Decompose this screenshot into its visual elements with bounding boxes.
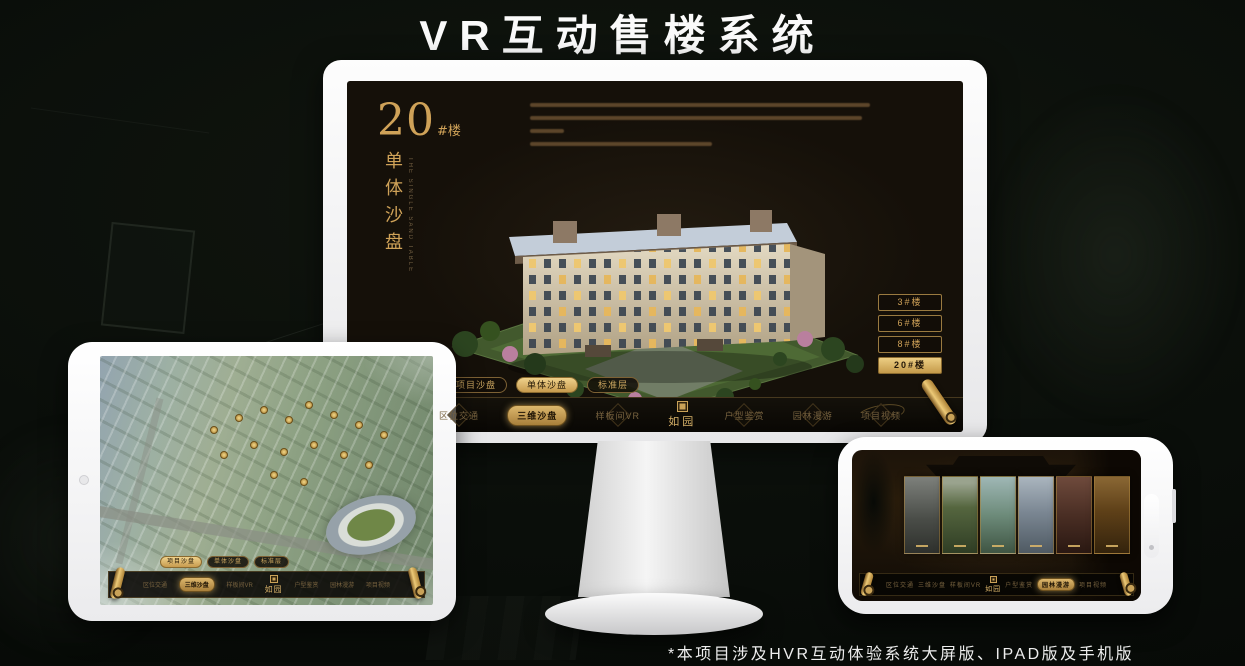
tab-single-sandtable[interactable]: 单体沙盘	[207, 556, 249, 568]
nav-item-garden-roam[interactable]: 园林漫游	[793, 409, 833, 422]
nav-item-garden-roam[interactable]: 园林漫游	[1037, 578, 1075, 591]
ruyuan-logo-text: 如园	[265, 584, 283, 595]
nav-item-location-traffic[interactable]: 区位交通	[439, 409, 479, 422]
background-texture-blob	[990, 90, 1240, 420]
intro-text-line	[530, 103, 870, 107]
tablet-camera-icon	[79, 475, 89, 485]
phone-screen-vr-scene[interactable]: 区位交通 三维沙盘 样板间VR 如园 户型鉴赏 园林漫游 项目视频	[852, 450, 1141, 601]
ruyuan-seal-icon	[270, 575, 278, 583]
gallery-panel[interactable]	[942, 476, 978, 554]
vertical-title: 单体沙盘	[379, 151, 405, 259]
nav-item-showroom-vr[interactable]: 样板间VR	[950, 580, 981, 589]
gallery-panel[interactable]	[1018, 476, 1054, 554]
floor-button-3[interactable]: 3#楼	[878, 294, 942, 311]
nav-item-project-video[interactable]: 项目视频	[861, 409, 901, 422]
phone-notch	[1144, 494, 1159, 558]
building-marker[interactable]	[280, 448, 288, 456]
tablet-device: 项目沙盘 单体沙盘 标准层 区位交通 三维沙盘 样板间VR 如园 户型鉴赏 园林…	[68, 342, 456, 621]
nav-item-garden-roam[interactable]: 园林漫游	[330, 580, 354, 589]
floor-button-20[interactable]: 20#楼	[878, 357, 942, 374]
building-marker[interactable]	[380, 431, 388, 439]
scroll-menu-icon[interactable]	[109, 566, 125, 599]
intro-paragraph	[530, 103, 878, 155]
tablet-tab-row: 项目沙盘 单体沙盘 标准层	[160, 556, 425, 568]
vertical-subtitle: THE SINGLE SAND TABLE	[407, 157, 413, 273]
ruyuan-logo[interactable]: 如园	[265, 575, 283, 595]
nav-item-location-traffic[interactable]: 区位交通	[143, 580, 167, 589]
aerial-road	[116, 398, 164, 565]
building-marker[interactable]	[285, 416, 293, 424]
sandtable-tab-row: 项目沙盘 单体沙盘 标准层	[445, 377, 639, 393]
building-marker[interactable]	[210, 426, 218, 434]
nav-item-3d-sandtable[interactable]: 三维沙盘	[179, 577, 215, 592]
monitor-stand-base	[545, 593, 763, 635]
tablet-screen-aerial-view[interactable]: 项目沙盘 单体沙盘 标准层 区位交通 三维沙盘 样板间VR 如园 户型鉴赏 园林…	[100, 356, 433, 605]
nav-item-project-video[interactable]: 项目视频	[1079, 580, 1107, 589]
building-marker[interactable]	[250, 441, 258, 449]
vr-sales-system-poster: VR互动售楼系统 20#楼 单体沙盘 THE SINGLE SAND TABLE	[0, 0, 1245, 666]
building-marker[interactable]	[270, 471, 278, 479]
tab-standard-floor[interactable]: 标准层	[587, 377, 639, 393]
floor-button-8[interactable]: 8#楼	[878, 336, 942, 353]
background-plaque-decoration	[101, 222, 195, 334]
nav-item-3d-sandtable[interactable]: 三维沙盘	[507, 405, 567, 426]
nav-item-floorplan-gallery[interactable]: 户型鉴赏	[1005, 580, 1033, 589]
building-marker[interactable]	[340, 451, 348, 459]
building-marker[interactable]	[235, 414, 243, 422]
footnote-text: *本项目涉及HVR互动体验系统大屏版、IPAD版及手机版	[668, 640, 1134, 664]
scroll-menu-icon[interactable]	[860, 571, 874, 596]
phone-device: 区位交通 三维沙盘 样板间VR 如园 户型鉴赏 园林漫游 项目视频	[838, 437, 1173, 614]
building-marker[interactable]	[220, 451, 228, 459]
phone-side-button	[1172, 489, 1176, 523]
nav-item-location-traffic[interactable]: 区位交通	[886, 580, 914, 589]
background-map-line	[31, 107, 209, 133]
gallery-panel[interactable]	[980, 476, 1016, 554]
nav-item-showroom-vr[interactable]: 样板间VR	[227, 580, 253, 589]
building-marker[interactable]	[300, 478, 308, 486]
scroll-menu-icon[interactable]	[1119, 571, 1133, 596]
intro-text-line	[530, 129, 564, 133]
floor-number: 20	[377, 95, 435, 146]
phone-bottom-nav: 区位交通 三维沙盘 样板间VR 如园 户型鉴赏 园林漫游 项目视频	[859, 573, 1134, 596]
page-title: VR互动售楼系统	[0, 2, 1245, 63]
nav-item-floorplan-gallery[interactable]: 户型鉴赏	[294, 580, 318, 589]
intro-text-line	[530, 116, 862, 120]
nav-item-3d-sandtable[interactable]: 三维沙盘	[918, 580, 946, 589]
building-marker[interactable]	[260, 406, 268, 414]
floor-heading: 20#楼	[377, 95, 461, 146]
ruyuan-logo-text: 如园	[668, 413, 696, 429]
scroll-menu-icon[interactable]	[407, 566, 423, 599]
tab-project-sandtable[interactable]: 项目沙盘	[160, 556, 202, 568]
floor-button-6[interactable]: 6#楼	[878, 315, 942, 332]
building-marker[interactable]	[305, 401, 313, 409]
ruyuan-seal-icon	[990, 576, 997, 583]
building-marker[interactable]	[355, 421, 363, 429]
building-marker[interactable]	[330, 411, 338, 419]
nav-item-floorplan-gallery[interactable]: 户型鉴赏	[724, 409, 764, 422]
intro-text-line	[530, 142, 712, 146]
building-marker[interactable]	[365, 461, 373, 469]
ruyuan-seal-icon	[677, 401, 688, 412]
gallery-panel[interactable]	[904, 476, 940, 554]
floor-button-group: 3#楼 6#楼 8#楼 20#楼	[878, 294, 942, 374]
floor-suffix: #楼	[437, 124, 461, 139]
tab-single-sandtable[interactable]: 单体沙盘	[516, 377, 578, 393]
tab-standard-floor[interactable]: 标准层	[254, 556, 289, 568]
ruyuan-logo-text: 如园	[985, 584, 1001, 594]
pavilion-roof-silhouette	[926, 456, 1076, 478]
tablet-nav-wrap: 项目沙盘 单体沙盘 标准层 区位交通 三维沙盘 样板间VR 如园 户型鉴赏 园林…	[108, 556, 425, 598]
gallery-panel[interactable]	[1056, 476, 1092, 554]
ruyuan-logo[interactable]: 如园	[668, 401, 696, 429]
gallery-panel[interactable]	[1094, 476, 1130, 554]
tablet-bottom-nav: 区位交通 三维沙盘 样板间VR 如园 户型鉴赏 园林漫游 项目视频	[108, 571, 425, 598]
monitor-stand-neck	[578, 441, 730, 597]
building-marker[interactable]	[310, 441, 318, 449]
ruyuan-logo[interactable]: 如园	[985, 576, 1001, 594]
nav-item-project-video[interactable]: 项目视频	[366, 580, 390, 589]
nav-item-showroom-vr[interactable]: 样板间VR	[596, 409, 641, 422]
